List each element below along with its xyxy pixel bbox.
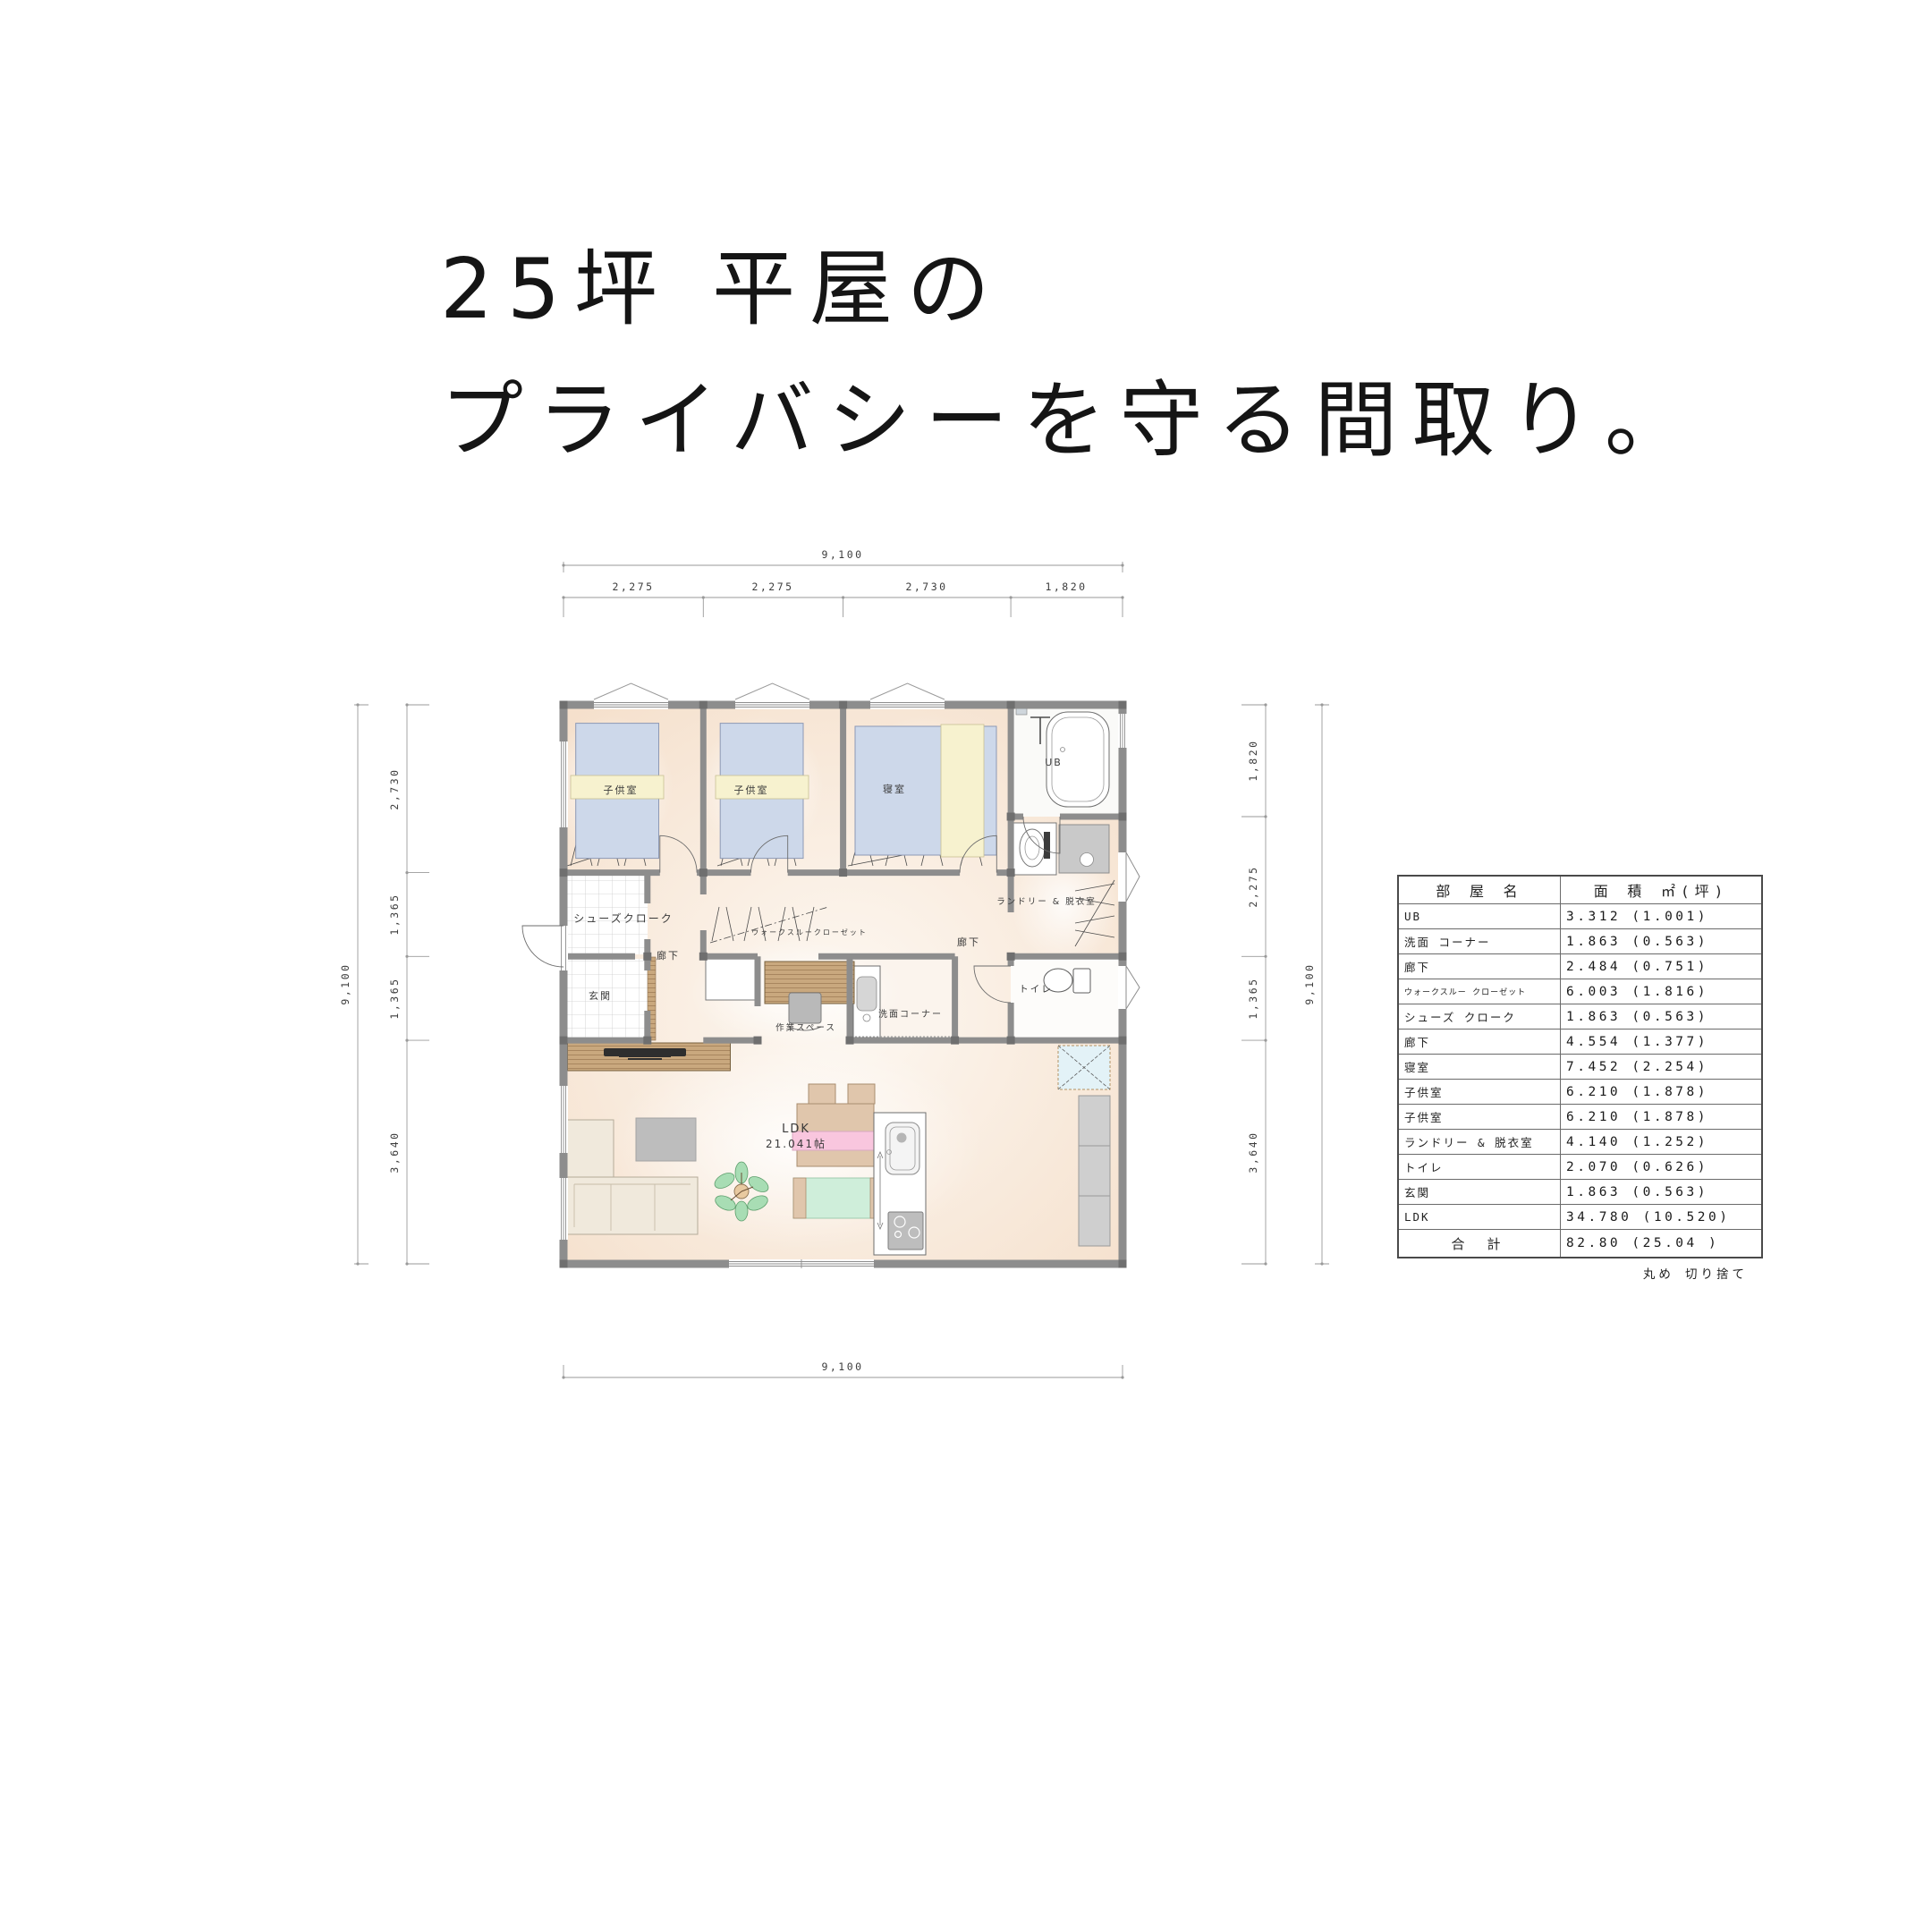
room-label-ub: UB (1045, 757, 1063, 768)
room-name: ウォークスルー クローゼット (1398, 979, 1561, 1004)
washbasin (853, 966, 880, 1038)
table-row: 廊下 4.554 (1.377) (1398, 1030, 1762, 1055)
room-area: 4.554 (1.377) (1561, 1030, 1763, 1055)
table-row: シューズ クローク 1.863 (0.563) (1398, 1004, 1762, 1030)
room-label-bedroom: 寝室 (883, 783, 906, 795)
room-area: 2.070 (0.626) (1561, 1155, 1763, 1180)
room-area: 7.452 (2.254) (1561, 1055, 1763, 1080)
room-name: UB (1398, 904, 1561, 929)
room-area: 34.780 (10.520) (1561, 1205, 1763, 1230)
washing-machine (1013, 823, 1056, 875)
total-label: 合 計 (1398, 1230, 1561, 1258)
table-row: 寝室 7.452 (2.254) (1398, 1055, 1762, 1080)
dim-right-seg-2: 2,275 (1247, 865, 1259, 907)
table-row: 子供室 6.210 (1.878) (1398, 1105, 1762, 1130)
tv-board (568, 1043, 731, 1071)
dim-left-seg-3: 1,365 (388, 977, 401, 1019)
room-label-ldk-size: 21.041帖 (766, 1137, 826, 1150)
room-label-laundry: ランドリー & 脱衣室 (996, 896, 1096, 907)
room-area: 1.863 (0.563) (1561, 1180, 1763, 1205)
hall-storage (706, 959, 755, 1000)
room-area: 1.863 (0.563) (1561, 1004, 1763, 1030)
room-label-shoes: シューズクローク (573, 911, 673, 925)
room-label-corridor-right: 廊下 (957, 936, 980, 948)
room-label-ldk: LDK (782, 1123, 810, 1136)
title-line-2: プライバシーを守る間取り。 (440, 355, 1702, 487)
room-name: シューズ クローク (1398, 1004, 1561, 1030)
room-area: 6.003 (1.816) (1561, 979, 1763, 1004)
bed-double (855, 724, 996, 857)
room-label-entrance: 玄関 (589, 989, 612, 1002)
table-header-room: 部 屋 名 (1398, 876, 1561, 904)
dim-top-total: 9,100 (821, 548, 863, 561)
bench-rug (793, 1178, 883, 1218)
page: 25坪 平屋の プライバシーを守る間取り。 (0, 0, 1932, 1932)
title-line-1: 25坪 平屋の (440, 224, 1702, 355)
dim-right-seg-3: 1,365 (1247, 977, 1259, 1019)
dim-left-total: 9,100 (339, 962, 352, 1004)
dim-right-total: 9,100 (1303, 962, 1316, 1004)
dim-right-seg-1: 1,820 (1247, 739, 1259, 781)
low-table (636, 1118, 696, 1161)
room-area: 3.312 (1.001) (1561, 904, 1763, 929)
room-area-table: 部 屋 名 面 積 ㎡(坪) UB 3.312 (1.001) 洗面 コーナー … (1397, 875, 1748, 1282)
rounding-note: 丸め 切り捨て (1397, 1264, 1748, 1282)
table-row: 玄関 1.863 (0.563) (1398, 1180, 1762, 1205)
dim-left-seg-4: 3,640 (388, 1131, 401, 1173)
room-label-toilet: トイレ (1019, 984, 1053, 995)
dim-left-seg-2: 1,365 (388, 893, 401, 935)
table-row: UB 3.312 (1.001) (1398, 904, 1762, 929)
room-area: 6.210 (1.878) (1561, 1080, 1763, 1105)
dim-left-seg-1: 2,730 (388, 767, 401, 809)
room-label-wash: 洗面コーナー (878, 1009, 943, 1020)
table-row: トイレ 2.070 (0.626) (1398, 1155, 1762, 1180)
room-name: 洗面 コーナー (1398, 929, 1561, 954)
cabinets (1079, 1096, 1110, 1246)
room-area: 2.484 (0.751) (1561, 954, 1763, 979)
room-name: トイレ (1398, 1155, 1561, 1180)
room-name: 子供室 (1398, 1080, 1561, 1105)
table-row: 子供室 6.210 (1.878) (1398, 1080, 1762, 1105)
room-label-child2: 子供室 (734, 784, 769, 796)
page-title: 25坪 平屋の プライバシーを守る間取り。 (440, 224, 1702, 487)
table-header-area: 面 積 ㎡(坪) (1561, 876, 1763, 904)
room-name: 子供室 (1398, 1105, 1561, 1130)
table-row: 洗面 コーナー 1.863 (0.563) (1398, 929, 1762, 954)
room-area: 4.140 (1.252) (1561, 1130, 1763, 1155)
dim-top-seg-1: 2,275 (612, 580, 654, 593)
room-name: ランドリー & 脱衣室 (1398, 1130, 1561, 1155)
room-label-wtc: ウォークスルークローゼット (751, 928, 868, 936)
floor-plan: 9,100 2,275 2,275 2,730 1,820 9,100 2,73… (331, 519, 1342, 1404)
room-label-workspace: 作業スペース (775, 1022, 836, 1033)
dim-bottom-total: 9,100 (821, 1360, 863, 1373)
total-area: 82.80 (25.04 ) (1561, 1230, 1763, 1258)
dim-top-seg-3: 2,730 (905, 580, 947, 593)
room-name: 廊下 (1398, 954, 1561, 979)
room-area: 1.863 (0.563) (1561, 929, 1763, 954)
kitchen-counter (874, 1113, 926, 1255)
table-row: LDK 34.780 (10.520) (1398, 1205, 1762, 1230)
room-area: 6.210 (1.878) (1561, 1105, 1763, 1130)
room-label-child1: 子供室 (604, 784, 639, 796)
table-row: ウォークスルー クローゼット 6.003 (1.816) (1398, 979, 1762, 1004)
fridge-spot (1058, 1046, 1110, 1089)
table-total-row: 合 計 82.80 (25.04 ) (1398, 1230, 1762, 1258)
room-name: 寝室 (1398, 1055, 1561, 1080)
room-name: 玄関 (1398, 1180, 1561, 1205)
table-row: ランドリー & 脱衣室 4.140 (1.252) (1398, 1130, 1762, 1155)
dim-top-seg-4: 1,820 (1045, 580, 1087, 593)
room-label-corridor-left: 廊下 (657, 949, 680, 962)
dim-right-seg-4: 3,640 (1247, 1131, 1259, 1173)
laundry-counter (1059, 825, 1109, 873)
room-name: 廊下 (1398, 1030, 1561, 1055)
table-header-row: 部 屋 名 面 積 ㎡(坪) (1398, 876, 1762, 904)
room-name: LDK (1398, 1205, 1561, 1230)
dim-top-seg-2: 2,275 (751, 580, 793, 593)
table-row: 廊下 2.484 (0.751) (1398, 954, 1762, 979)
